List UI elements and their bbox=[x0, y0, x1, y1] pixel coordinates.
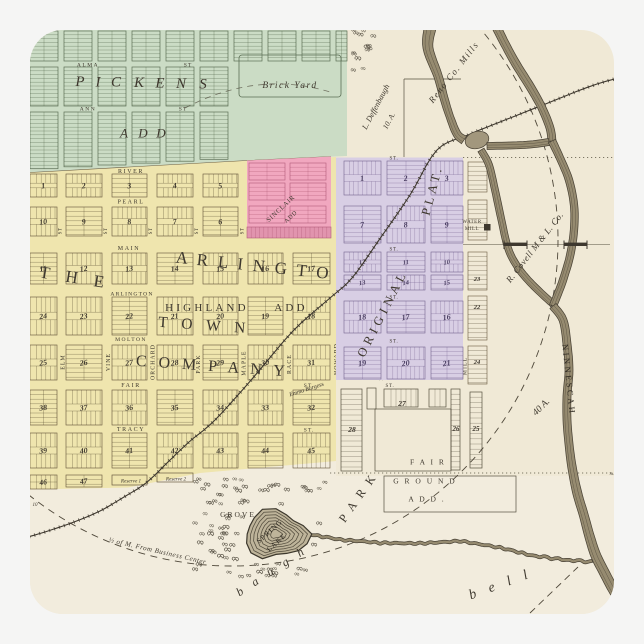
svg-text:GROVE: GROVE bbox=[220, 510, 256, 519]
svg-text:ST: ST bbox=[59, 228, 64, 235]
svg-text:21: 21 bbox=[441, 358, 451, 368]
svg-text:K: K bbox=[133, 75, 145, 91]
svg-text:ST: ST bbox=[149, 228, 154, 235]
svg-text:36: 36 bbox=[124, 403, 134, 413]
svg-text:19: 19 bbox=[358, 358, 367, 368]
svg-text:MILL: MILL bbox=[465, 227, 479, 232]
svg-text:16: 16 bbox=[442, 312, 451, 322]
svg-text:10: 10 bbox=[33, 503, 39, 508]
svg-text:43: 43 bbox=[215, 446, 225, 456]
svg-text:ADD: ADD bbox=[274, 302, 307, 314]
svg-text:46: 46 bbox=[38, 477, 48, 487]
svg-text:27: 27 bbox=[397, 399, 406, 408]
svg-text:S: S bbox=[199, 76, 207, 92]
svg-text:35: 35 bbox=[169, 403, 179, 413]
svg-text:VINE: VINE bbox=[106, 353, 112, 371]
svg-text:N: N bbox=[175, 76, 187, 92]
svg-text:ST: ST bbox=[241, 228, 246, 235]
svg-text:ST: ST bbox=[195, 228, 200, 235]
svg-text:25: 25 bbox=[472, 425, 481, 433]
svg-text:ARLINGTON: ARLINGTON bbox=[110, 292, 153, 298]
svg-text:St.: St. bbox=[610, 471, 615, 476]
svg-text:TRACY: TRACY bbox=[117, 427, 145, 433]
svg-text:28: 28 bbox=[347, 425, 356, 434]
svg-text:P: P bbox=[74, 74, 84, 90]
svg-text:39: 39 bbox=[38, 446, 48, 456]
svg-text:ANN: ANN bbox=[80, 107, 96, 113]
svg-text:D: D bbox=[137, 126, 148, 141]
svg-text:24: 24 bbox=[473, 359, 481, 366]
svg-text:22: 22 bbox=[473, 304, 481, 311]
svg-text:Reserve 2: Reserve 2 bbox=[165, 477, 187, 483]
svg-text:40: 40 bbox=[78, 446, 88, 456]
svg-text:PEARL: PEARL bbox=[117, 200, 144, 206]
svg-text:ST.: ST. bbox=[389, 340, 398, 345]
svg-text:C: C bbox=[111, 75, 122, 91]
svg-text:ST: ST bbox=[184, 63, 192, 69]
svg-text:E: E bbox=[154, 76, 164, 92]
svg-text:45: 45 bbox=[306, 446, 316, 456]
svg-text:44: 44 bbox=[260, 446, 270, 456]
svg-text:38: 38 bbox=[38, 403, 48, 413]
svg-text:ST.: ST. bbox=[385, 384, 394, 389]
svg-text:ST.: ST. bbox=[389, 248, 398, 253]
svg-text:13: 13 bbox=[125, 264, 134, 274]
svg-text:ALMA: ALMA bbox=[77, 63, 99, 69]
svg-text:33: 33 bbox=[260, 403, 270, 413]
svg-text:RIVER: RIVER bbox=[118, 169, 144, 175]
svg-text:26: 26 bbox=[452, 425, 461, 433]
svg-text:A D D .: A D D . bbox=[408, 495, 445, 504]
svg-text:22: 22 bbox=[124, 311, 134, 321]
svg-text:19: 19 bbox=[261, 311, 270, 321]
svg-text:Reserve 1: Reserve 1 bbox=[120, 479, 142, 485]
svg-text:41: 41 bbox=[124, 446, 134, 456]
svg-text:A: A bbox=[119, 126, 128, 141]
svg-text:26: 26 bbox=[78, 358, 88, 368]
svg-text:18: 18 bbox=[358, 312, 367, 322]
svg-text:D: D bbox=[155, 126, 166, 141]
svg-text:31: 31 bbox=[306, 358, 316, 368]
svg-text:11: 11 bbox=[402, 259, 409, 267]
svg-text:10: 10 bbox=[39, 217, 48, 227]
svg-text:F A I R: F A I R bbox=[410, 458, 446, 467]
svg-text:23: 23 bbox=[78, 311, 88, 321]
svg-text:MAIN: MAIN bbox=[118, 246, 140, 252]
svg-text:32: 32 bbox=[306, 403, 316, 413]
svg-text:MOLTON: MOLTON bbox=[115, 337, 147, 343]
svg-text:ST: ST bbox=[104, 228, 109, 235]
svg-text:20: 20 bbox=[400, 358, 410, 368]
svg-text:FAIR: FAIR bbox=[121, 383, 141, 389]
svg-text:24: 24 bbox=[38, 311, 48, 321]
svg-text:Brick Yard: Brick Yard bbox=[262, 81, 317, 91]
svg-text:MILL: MILL bbox=[463, 357, 469, 376]
svg-text:HIGHLAND: HIGHLAND bbox=[165, 302, 249, 314]
svg-text:WATER: WATER bbox=[462, 220, 481, 225]
svg-text:G R O U N D: G R O U N D bbox=[393, 477, 456, 486]
svg-text:ST.: ST. bbox=[304, 428, 314, 434]
svg-text:23: 23 bbox=[473, 276, 481, 283]
svg-text:ST.: ST. bbox=[389, 157, 398, 162]
svg-text:25: 25 bbox=[38, 358, 48, 368]
svg-text:47: 47 bbox=[78, 476, 88, 486]
svg-text:ELM: ELM bbox=[61, 354, 67, 370]
svg-text:I: I bbox=[95, 74, 102, 90]
